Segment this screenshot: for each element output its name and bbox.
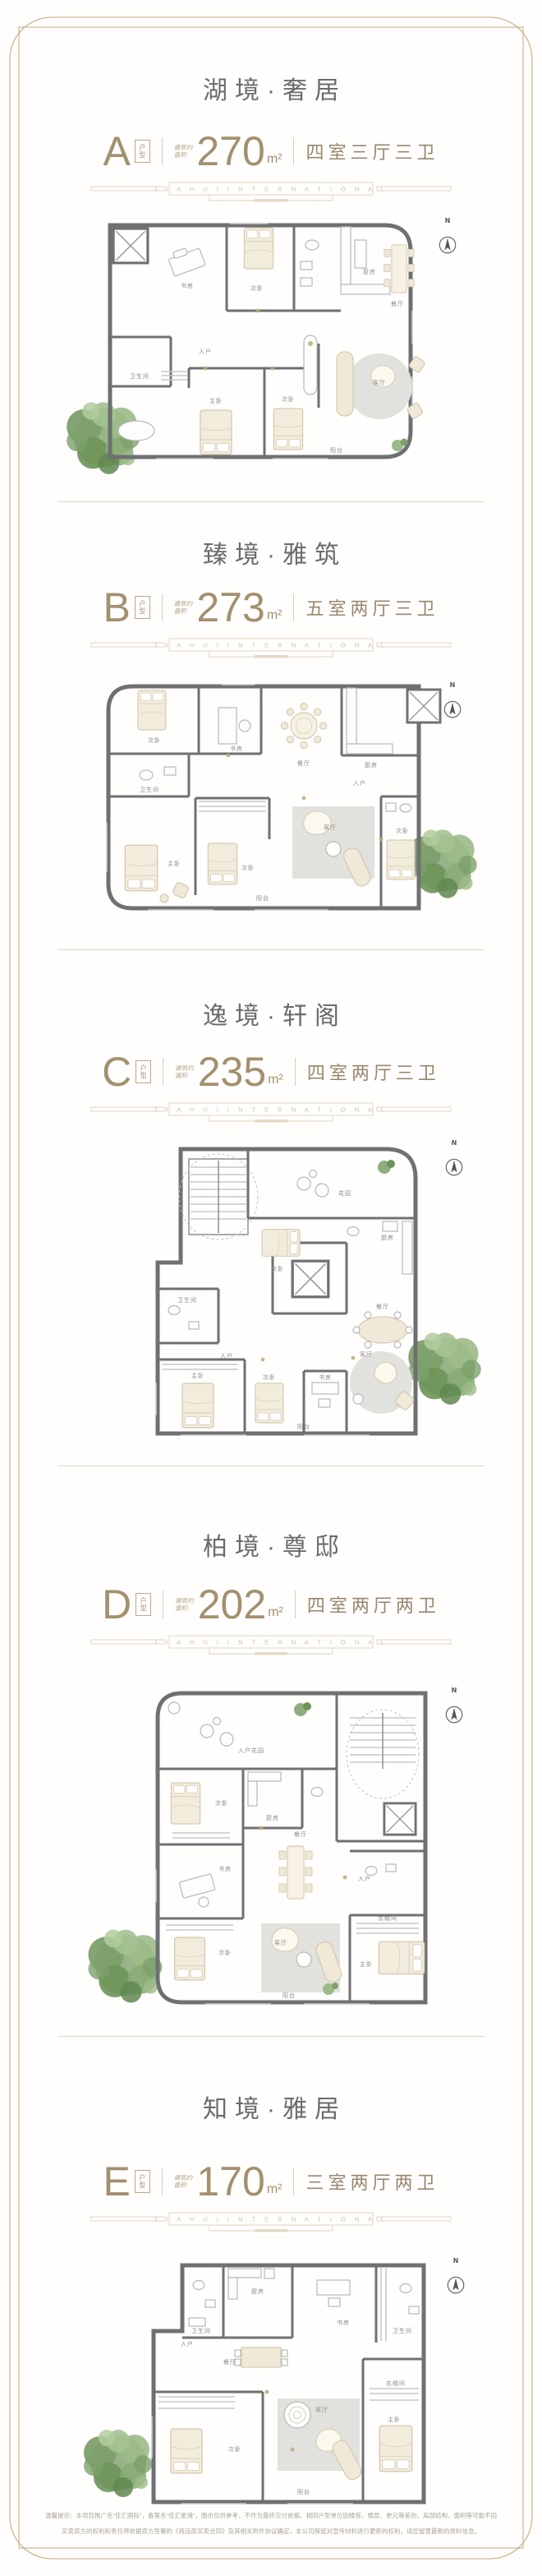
brand-divider: J I A H U I I N T E R N A T I O N A L xyxy=(0,635,542,660)
unit-section-a: 湖境·奢居 A 户型 建筑约面积 270 m² 四室三厅三卫 J I A H xyxy=(0,0,542,501)
unit-letter: B xyxy=(103,587,131,628)
type-box: 户型 xyxy=(135,1593,151,1616)
unit-title-c: 逸境·轩阁 xyxy=(0,999,542,1034)
svg-text:N: N xyxy=(453,2257,459,2264)
floor-plan-e: N xyxy=(57,2252,485,2511)
spec-divider xyxy=(162,137,163,165)
area-value: 170 xyxy=(196,2161,264,2202)
room-label: 书房 xyxy=(218,1865,232,1872)
area-value: 235 xyxy=(198,1051,266,1092)
room-label: 次卧 xyxy=(250,284,264,292)
room-label: 卫生间 xyxy=(393,2327,412,2334)
room-label: 客厅 xyxy=(373,379,386,386)
unit-spec-row-d: D 户型 建筑约面积 202 m² 四室两厅两卫 xyxy=(0,1583,542,1626)
room-label: 入户花园 xyxy=(238,1747,264,1754)
area-value: 273 xyxy=(196,587,264,628)
room-label: 书房 xyxy=(181,282,194,289)
section-divider xyxy=(57,2036,485,2037)
room-label: 阳台 xyxy=(330,446,343,454)
floor-plan-b: N xyxy=(57,675,485,921)
layout-text: 五室两厅三卫 xyxy=(305,594,439,621)
room-label: 主卧 xyxy=(209,397,223,404)
room-label: 卫生间 xyxy=(130,372,149,380)
brand-divider-text: J I A H U I I N T E R N A T I O N A L xyxy=(154,642,388,649)
room-label: 次卧 xyxy=(218,1949,232,1956)
room-label: 次卧 xyxy=(271,1265,284,1272)
unit-letter: E xyxy=(103,2161,131,2202)
room-label: 衣帽间 xyxy=(378,1914,397,1922)
area-unit: m² xyxy=(267,608,282,623)
spec-divider xyxy=(293,137,294,165)
spec-divider xyxy=(163,1590,163,1618)
room-label: 入户 xyxy=(358,1875,371,1882)
section-divider xyxy=(57,949,485,950)
room-label: 入户 xyxy=(220,1352,233,1360)
spec-divider xyxy=(293,2167,294,2195)
spec-divider xyxy=(295,1058,296,1086)
area-value: 202 xyxy=(198,1584,266,1625)
room-label: 衣帽间 xyxy=(386,2380,406,2387)
room-label: 次卧 xyxy=(282,395,295,403)
spec-divider xyxy=(293,593,294,621)
spec-divider xyxy=(162,593,163,621)
room-label: 入户 xyxy=(181,2340,194,2347)
room-label: 厨房 xyxy=(365,761,378,769)
section-divider xyxy=(57,1466,485,1466)
north-indicator: N xyxy=(446,1687,462,1723)
room-label: 书房 xyxy=(230,745,243,752)
area-value: 270 xyxy=(196,131,264,172)
room-label: 厨房 xyxy=(266,1814,279,1821)
room-label: 餐厅 xyxy=(376,1303,389,1310)
layout-text: 四室三厅三卫 xyxy=(305,138,439,164)
room-label: 餐厅 xyxy=(391,300,404,307)
room-label: 阳台 xyxy=(297,1423,310,1430)
brochure-page: 湖境·奢居 A 户型 建筑约面积 270 m² 四室三厅三卫 J I A H xyxy=(0,0,542,2576)
elevator-icon xyxy=(384,1803,416,1835)
disclaimer-line-2: 买卖双方的权利和责任将依据双方签署的《商品房买卖合同》及其相关附件协议确定，本公… xyxy=(45,2523,497,2539)
room-label: 次卧 xyxy=(148,736,161,744)
unit-spec-row-a: A 户型 建筑约面积 270 m² 四室三厅三卫 xyxy=(0,130,542,173)
room-label: 餐厅 xyxy=(294,1830,307,1838)
unit-section-d: 柏境·尊邸 D 户型 建筑约面积 202 m² 四室两厅两卫 J I A H xyxy=(0,1466,542,2036)
spec-divider xyxy=(162,2167,163,2195)
room-label: 阳台 xyxy=(297,2488,310,2495)
unit-title-e: 知境·雅居 xyxy=(0,2093,542,2127)
room-label: 客厅 xyxy=(315,2406,328,2413)
unit-spec-row-b: B 户型 建筑约面积 273 m² 五室两厅三卫 xyxy=(0,586,542,629)
unit-section-c: 逸境·轩阁 C 户型 建筑约面积 235 m² 四室两厅三卫 J I A H xyxy=(0,949,542,1466)
layout-text: 四室两厅两卫 xyxy=(307,1591,440,1618)
type-box: 户型 xyxy=(135,140,150,163)
room-label: 厨房 xyxy=(251,2287,264,2295)
north-indicator: N xyxy=(444,681,460,718)
type-box: 户型 xyxy=(135,596,150,619)
svg-text:N: N xyxy=(450,681,456,689)
north-indicator: N xyxy=(448,2257,463,2293)
unit-letter: D xyxy=(102,1584,131,1625)
room-label: 入户 xyxy=(353,779,366,787)
floor-plan-d: N xyxy=(57,1680,485,2021)
room-label: 次卧 xyxy=(396,827,409,834)
area-note: 建筑约面积 xyxy=(174,600,193,615)
layout-text: 三室两厅两卫 xyxy=(305,2168,439,2195)
brand-divider: J I A H U I I N T E R N A T I O N A L xyxy=(0,179,542,204)
unit-title-d: 柏境·尊邸 xyxy=(0,1530,542,1565)
room-label: 主卧 xyxy=(168,860,181,867)
room-label: 卫生间 xyxy=(177,1296,197,1304)
unit-title-b: 臻境·雅筑 xyxy=(0,538,542,573)
brand-divider-text: J I A H U I I N T E R N A T I O N A L xyxy=(154,1106,388,1114)
brand-divider: J I A H U I I N T E R N A T I O N A L xyxy=(0,2209,542,2234)
room-label: 客厅 xyxy=(360,1350,373,1358)
brand-divider: J I A H U I I N T E R N A T I O N A L xyxy=(0,1100,542,1124)
room-label: 次卧 xyxy=(215,1799,228,1807)
floor-plan-c: N xyxy=(57,1136,485,1461)
unit-spec-row-c: C 户型 建筑约面积 235 m² 四室两厅三卫 xyxy=(0,1050,542,1093)
room-label: 主卧 xyxy=(360,1960,373,1968)
area-unit: m² xyxy=(268,1605,283,1620)
room-label: 阳台 xyxy=(282,1992,296,1999)
area-unit: m² xyxy=(268,1073,283,1087)
room-label: 阳台 xyxy=(256,894,269,902)
spec-divider xyxy=(163,1058,163,1086)
disclaimer: 温馨提示：本项目推广名“佳汇国际”，备案名“佳汇星滩”，图示仅供参考，不作为最终… xyxy=(45,2508,497,2539)
tree-decoration xyxy=(408,1332,481,1404)
type-box: 户型 xyxy=(135,1060,151,1083)
room-label: 客厅 xyxy=(274,1939,287,1946)
room-label: 卫生间 xyxy=(191,2327,211,2334)
disclaimer-line-1: 温馨提示：本项目推广名“佳汇国际”，备案名“佳汇星滩”，图示仅供参考，不作为最终… xyxy=(45,2508,497,2523)
room-label: 主卧 xyxy=(388,2416,401,2423)
room-label: 次卧 xyxy=(228,2445,241,2453)
area-note: 建筑约面积 xyxy=(174,144,193,159)
north-indicator: N xyxy=(439,217,455,253)
brand-divider: J I A H U I I N T E R N A T I O N A L xyxy=(0,1632,542,1657)
room-label: 书房 xyxy=(319,1373,332,1381)
area-note: 建筑约面积 xyxy=(174,2174,193,2189)
elevator-icon xyxy=(113,229,148,263)
room-label: 客厅 xyxy=(324,824,337,831)
area-unit: m² xyxy=(267,2182,282,2197)
brand-divider-text: J I A H U I I N T E R N A T I O N A L xyxy=(154,2216,388,2223)
room-label: 厨房 xyxy=(363,268,376,275)
brand-divider-text: J I A H U I I N T E R N A T I O N A L xyxy=(154,186,388,193)
svg-text:N: N xyxy=(452,1139,457,1147)
elevator-icon xyxy=(292,1261,328,1297)
area-note: 建筑约面积 xyxy=(175,1064,194,1079)
area-note: 建筑约面积 xyxy=(175,1597,194,1612)
tree-decoration xyxy=(84,2430,152,2497)
room-label: 次卧 xyxy=(263,1373,276,1381)
room-label: 次卧 xyxy=(241,864,255,871)
svg-text:N: N xyxy=(445,217,451,224)
unit-title-a: 湖境·奢居 xyxy=(0,74,542,108)
room-label: 入户 xyxy=(199,348,212,355)
layout-text: 四室两厅三卫 xyxy=(307,1059,440,1085)
unit-spec-row-e: E 户型 建筑约面积 170 m² 三室两厅两卫 xyxy=(0,2160,542,2203)
room-label: 书房 xyxy=(337,2319,350,2326)
section-divider xyxy=(57,501,485,502)
spec-divider xyxy=(295,1590,296,1618)
unit-letter: C xyxy=(102,1051,131,1092)
room-label: 厨房 xyxy=(381,1234,394,1241)
room-label: 花园 xyxy=(338,1189,351,1197)
unit-section-e: 知境·雅居 E 户型 建筑约面积 170 m² 三室两厅两卫 J I A H xyxy=(0,2036,542,2576)
elevator-icon xyxy=(407,690,440,722)
svg-text:N: N xyxy=(452,1687,457,1694)
area-unit: m² xyxy=(267,152,282,167)
room-label: 餐厅 xyxy=(223,2358,237,2366)
north-indicator: N xyxy=(446,1139,462,1175)
floor-plan-a: N xyxy=(57,212,485,483)
room-label: 卫生间 xyxy=(140,786,159,793)
unit-letter: A xyxy=(103,131,131,172)
room-label: 餐厅 xyxy=(297,759,310,767)
room-label: 主卧 xyxy=(191,1372,204,1379)
unit-section-b: 臻境·雅筑 B 户型 建筑约面积 273 m² 五室两厅三卫 J I A H xyxy=(0,501,542,949)
type-box: 户型 xyxy=(135,2170,150,2193)
tree-decoration xyxy=(89,1930,163,2003)
brand-divider-text: J I A H U I I N T E R N A T I O N A L xyxy=(154,1639,388,1646)
